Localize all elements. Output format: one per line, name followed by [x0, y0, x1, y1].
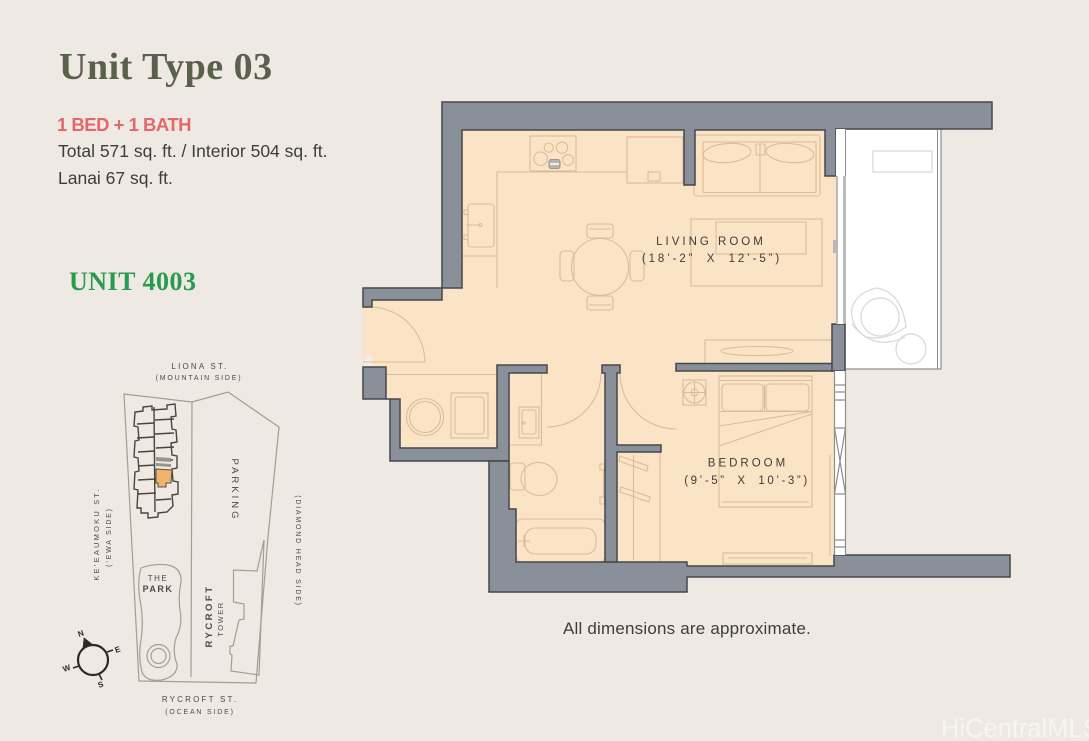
svg-text:BEDROOM: BEDROOM [708, 458, 788, 470]
svg-text:KE’EAUMOKU ST.: KE’EAUMOKU ST. [92, 487, 101, 580]
svg-text:(OCEAN SIDE): (OCEAN SIDE) [165, 709, 234, 716]
svg-text:All dimensions are approximate: All dimensions are approximate. [563, 619, 811, 638]
svg-text:PARK: PARK [143, 584, 174, 594]
svg-text:HiCentralMLS: HiCentralMLS [941, 715, 1089, 741]
svg-text:LIVING ROOM: LIVING ROOM [656, 236, 766, 248]
svg-text:(18’-2” X 12’-5”): (18’-2” X 12’-5”) [642, 253, 782, 265]
svg-text:PARKING: PARKING [229, 458, 240, 521]
svg-text:(9’-5” X 10’-3”): (9’-5” X 10’-3”) [684, 475, 810, 487]
svg-text:THE: THE [148, 574, 169, 583]
svg-text:Lanai 67 sq. ft.: Lanai 67 sq. ft. [58, 168, 173, 188]
svg-text:(MOUNTAIN SIDE): (MOUNTAIN SIDE) [156, 375, 243, 382]
svg-text:LIONA ST.: LIONA ST. [171, 362, 228, 371]
svg-text:(‘EWA SIDE): (‘EWA SIDE) [106, 507, 113, 567]
svg-text:1 BED + 1 BATH: 1 BED + 1 BATH [57, 114, 191, 135]
svg-text:RYCROFT: RYCROFT [204, 584, 215, 647]
svg-text:UNIT 4003: UNIT 4003 [69, 267, 197, 296]
svg-text:Total 571 sq. ft. / Interior 5: Total 571 sq. ft. / Interior 504 sq. ft. [58, 141, 327, 161]
svg-text:(DIAMOND HEAD SIDE): (DIAMOND HEAD SIDE) [294, 495, 301, 607]
svg-text:RYCROFT ST.: RYCROFT ST. [162, 695, 238, 704]
svg-text:TOWER: TOWER [216, 601, 225, 636]
svg-text:Unit Type 03: Unit Type 03 [59, 46, 273, 88]
